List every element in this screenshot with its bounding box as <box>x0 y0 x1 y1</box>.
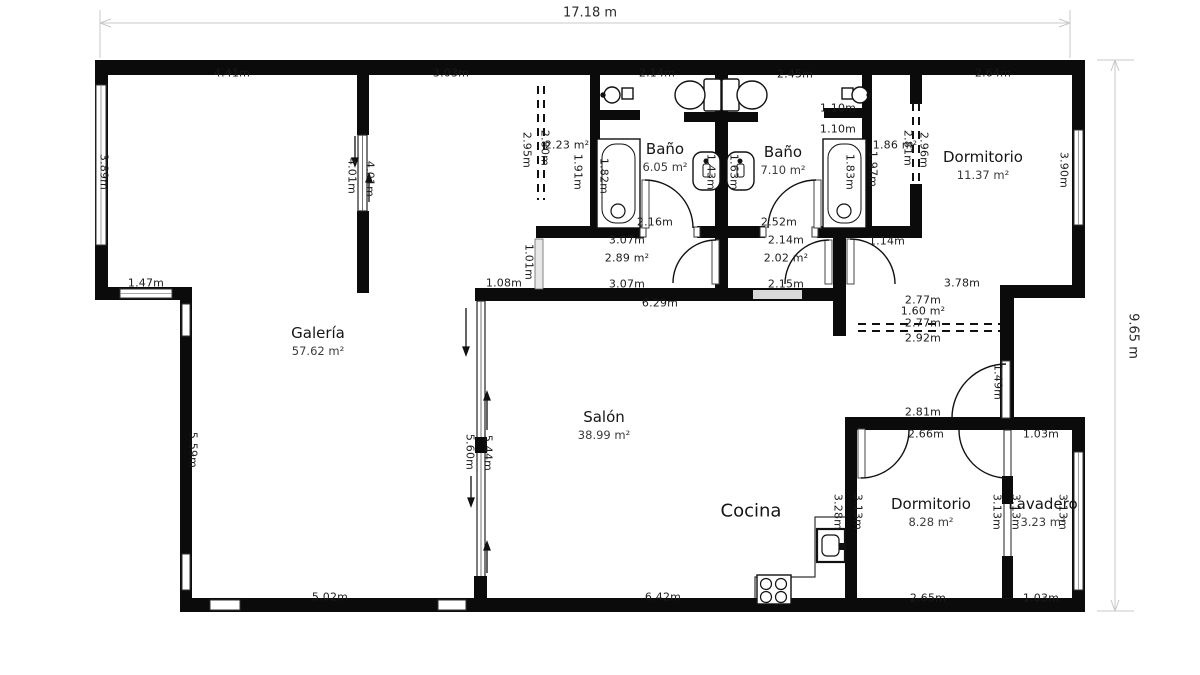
room-area: 38.99 m² <box>578 428 630 442</box>
dimension-label: 3.13m <box>991 494 1004 530</box>
dimension-label: 6.42m <box>645 591 681 604</box>
dimension-label: 2.14m <box>639 67 675 80</box>
dimension-label: 3.07m <box>609 234 645 247</box>
dimension-label: 1.10m <box>820 102 856 115</box>
room-label: Baño6.05 m² <box>642 140 687 174</box>
dimension-label: 2.15m <box>768 278 804 291</box>
dimension-label: 1.10m <box>820 123 856 136</box>
dimension-label: 2.95m <box>521 132 534 168</box>
floor-plan: 17.18 m 9.65 m 4.41m3.03m2.14m2.45m2.64m… <box>0 0 1200 675</box>
room-area: 57.62 m² <box>291 344 345 358</box>
room-label: Dormitorio8.28 m² <box>891 495 971 529</box>
room-label: Salón38.99 m² <box>578 408 630 442</box>
dimension-label: 4.01m <box>346 158 359 194</box>
dimension-label: 2.52m <box>761 216 797 229</box>
dimension-label: 1.83m <box>844 154 857 190</box>
room-area: 3.23 m² <box>1008 515 1077 529</box>
dimension-label: 4.01m <box>364 161 377 197</box>
dimension-label: 3.07m <box>609 278 645 291</box>
dimension-label: 2.14m <box>768 234 804 247</box>
dimension-label: 1.47m <box>128 277 164 290</box>
dimension-label: 2.65m <box>910 592 946 605</box>
dimension-label: 2.16m <box>637 216 673 229</box>
dimension-label: 1.91m <box>572 154 585 190</box>
room-label: Baño7.10 m² <box>760 143 805 177</box>
room-name: Galería <box>291 324 345 342</box>
room-label: Lavadero3.23 m² <box>1008 495 1077 529</box>
labels-layer: 17.18 m 9.65 m 4.41m3.03m2.14m2.45m2.64m… <box>0 0 1200 675</box>
dimension-label: 2.45m <box>777 68 813 81</box>
room-area: 11.37 m² <box>943 168 1023 182</box>
dimension-label: 1.03m <box>1023 428 1059 441</box>
dimension-label: 3.90m <box>1058 152 1071 188</box>
dimension-label: 4.41m <box>214 67 250 80</box>
dimension-label: 2.64m <box>975 67 1011 80</box>
dimension-label: 3.28m <box>832 494 845 530</box>
dimension-label: 5.60m <box>464 434 477 470</box>
dimension-label: 1.82m <box>598 158 611 194</box>
room-name: Baño <box>760 143 805 161</box>
dimension-label: 5.59m <box>187 432 200 468</box>
dimension-label: 6.29m <box>642 297 678 310</box>
overall-width-label: 17.18 m <box>563 6 617 21</box>
dimension-label: 5.02m <box>312 591 348 604</box>
dimension-label: 3.89m <box>98 154 111 190</box>
room-area: 7.10 m² <box>760 163 805 177</box>
room-name: Salón <box>578 408 630 426</box>
room-name: Cocina <box>721 501 782 522</box>
room-label: Dormitorio11.37 m² <box>943 148 1023 182</box>
dimension-label: 2.02 m² <box>764 252 809 265</box>
dimension-label: 2.92m <box>905 332 941 345</box>
dimension-label: 2.66m <box>908 428 944 441</box>
dimension-label: 1.14m <box>869 235 905 248</box>
dimension-label: 1.03m <box>1023 592 1059 605</box>
dimension-label: 3.78m <box>944 277 980 290</box>
room-name: Dormitorio <box>943 148 1023 166</box>
dimension-label: 1.49m <box>992 364 1005 400</box>
room-area: 8.28 m² <box>891 515 971 529</box>
dimension-label: 2.96m <box>918 132 931 168</box>
room-area: 6.05 m² <box>642 160 687 174</box>
room-name: Lavadero <box>1008 495 1077 513</box>
dimension-label: 5.44m <box>482 435 495 471</box>
dimension-label: 2.81m <box>902 130 915 166</box>
room-label: Cocina <box>721 501 782 522</box>
dimension-label: 1.01m <box>523 244 536 280</box>
dimension-label: 2.77m <box>905 317 941 330</box>
dimension-label: 1.08m <box>486 277 522 290</box>
dimension-label: 3.13m <box>852 494 865 530</box>
dimension-label: 2.89 m² <box>605 252 650 265</box>
overall-height-label: 9.65 m <box>1126 313 1141 359</box>
room-name: Baño <box>642 140 687 158</box>
dimension-label: 2.81m <box>905 406 941 419</box>
dimension-label: 1.43m <box>705 154 718 190</box>
room-name: Dormitorio <box>891 495 971 513</box>
dimension-label: 3.03m <box>433 67 469 80</box>
dimension-label: 1.63m <box>728 154 741 190</box>
room-label: Galería57.62 m² <box>291 324 345 358</box>
dimension-label: 2.80m <box>539 130 552 166</box>
dimension-label: 1.97m <box>867 151 880 187</box>
